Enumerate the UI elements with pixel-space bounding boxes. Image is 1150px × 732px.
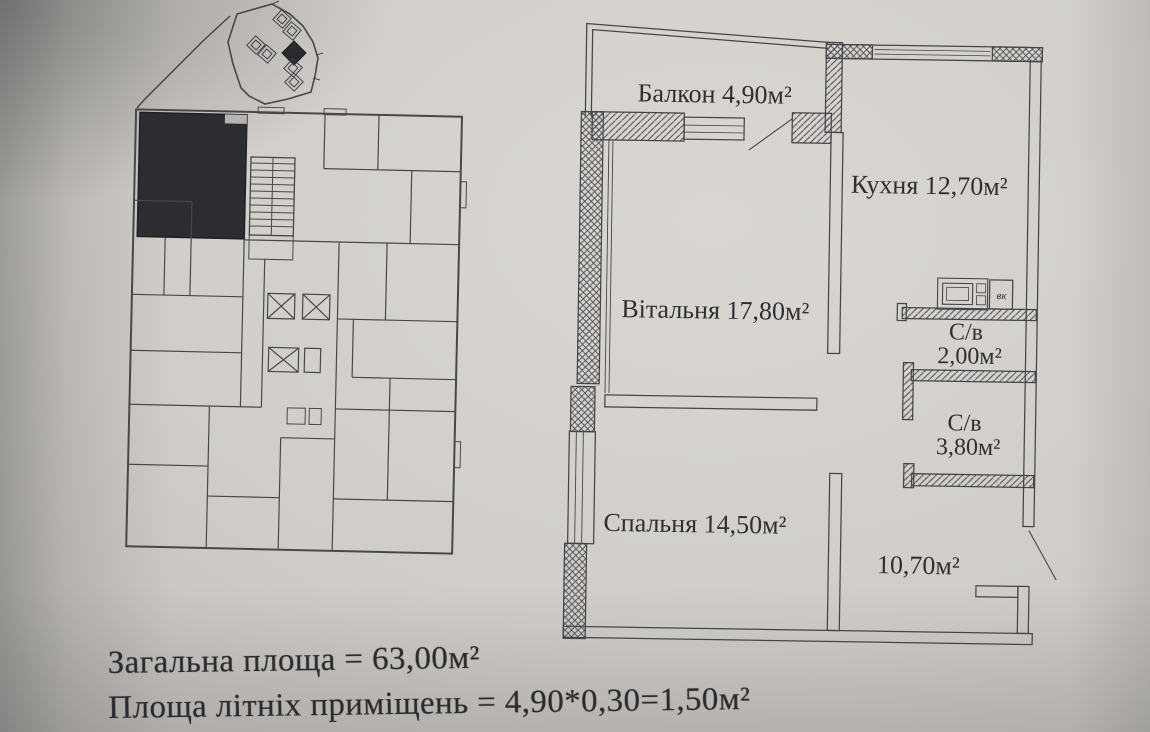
- kitchen-living-divider-wall: [822, 42, 845, 353]
- bathroom-small-name: С/в: [949, 319, 983, 346]
- vent-duct-label: вк: [997, 290, 1008, 302]
- staircase: [249, 157, 295, 260]
- scanned-floorplan-page: вк Балкон 4,90м² Кухня 12,70м² Вітальня …: [0, 0, 1150, 732]
- balcony-living-wall: [592, 110, 832, 152]
- bathroom-small-area: 2,00м²: [937, 343, 1002, 370]
- site-plan-sketch: [120, 0, 332, 122]
- entrance-door-swing: [1028, 531, 1057, 580]
- living-room-label: Вітальня 17,80м²: [621, 294, 810, 326]
- balcony-window: [684, 117, 744, 140]
- room-labels: Балкон 4,90м² Кухня 12,70м² Вітальня 17,…: [603, 78, 1010, 581]
- apartment-plan: вк Балкон 4,90м² Кухня 12,70м² Вітальня …: [560, 0, 1150, 732]
- balcony-door-swing: [749, 118, 792, 151]
- elevator-shafts: [266, 293, 330, 372]
- living-bedroom-wall: [605, 395, 817, 410]
- vent-duct-icon: вк: [989, 280, 1012, 309]
- site-building-markers: [247, 10, 306, 91]
- bathroom-large-name: С/в: [947, 410, 981, 437]
- site-road-line: [137, 16, 230, 108]
- exterior-left-wall: [563, 111, 613, 639]
- bathroom-large-area: 3,80м²: [936, 434, 1001, 461]
- kitchen-top-wall: [826, 44, 1042, 61]
- bedroom-label: Спальня 14,50м²: [603, 508, 787, 540]
- bedroom-hall-divider-wall: [827, 473, 841, 630]
- kitchen-label: Кухня 12,70м²: [851, 170, 1008, 201]
- area-summary: Загальна площа = 63,00м² Площа літніх пр…: [107, 631, 828, 731]
- building-floor-plan: [123, 108, 468, 563]
- site-current-building-marker: [282, 41, 306, 65]
- balcony-label: Балкон 4,90м²: [637, 78, 792, 109]
- washing-machine-icon: [937, 278, 987, 310]
- hallway-area-label: 10,70м²: [877, 550, 960, 580]
